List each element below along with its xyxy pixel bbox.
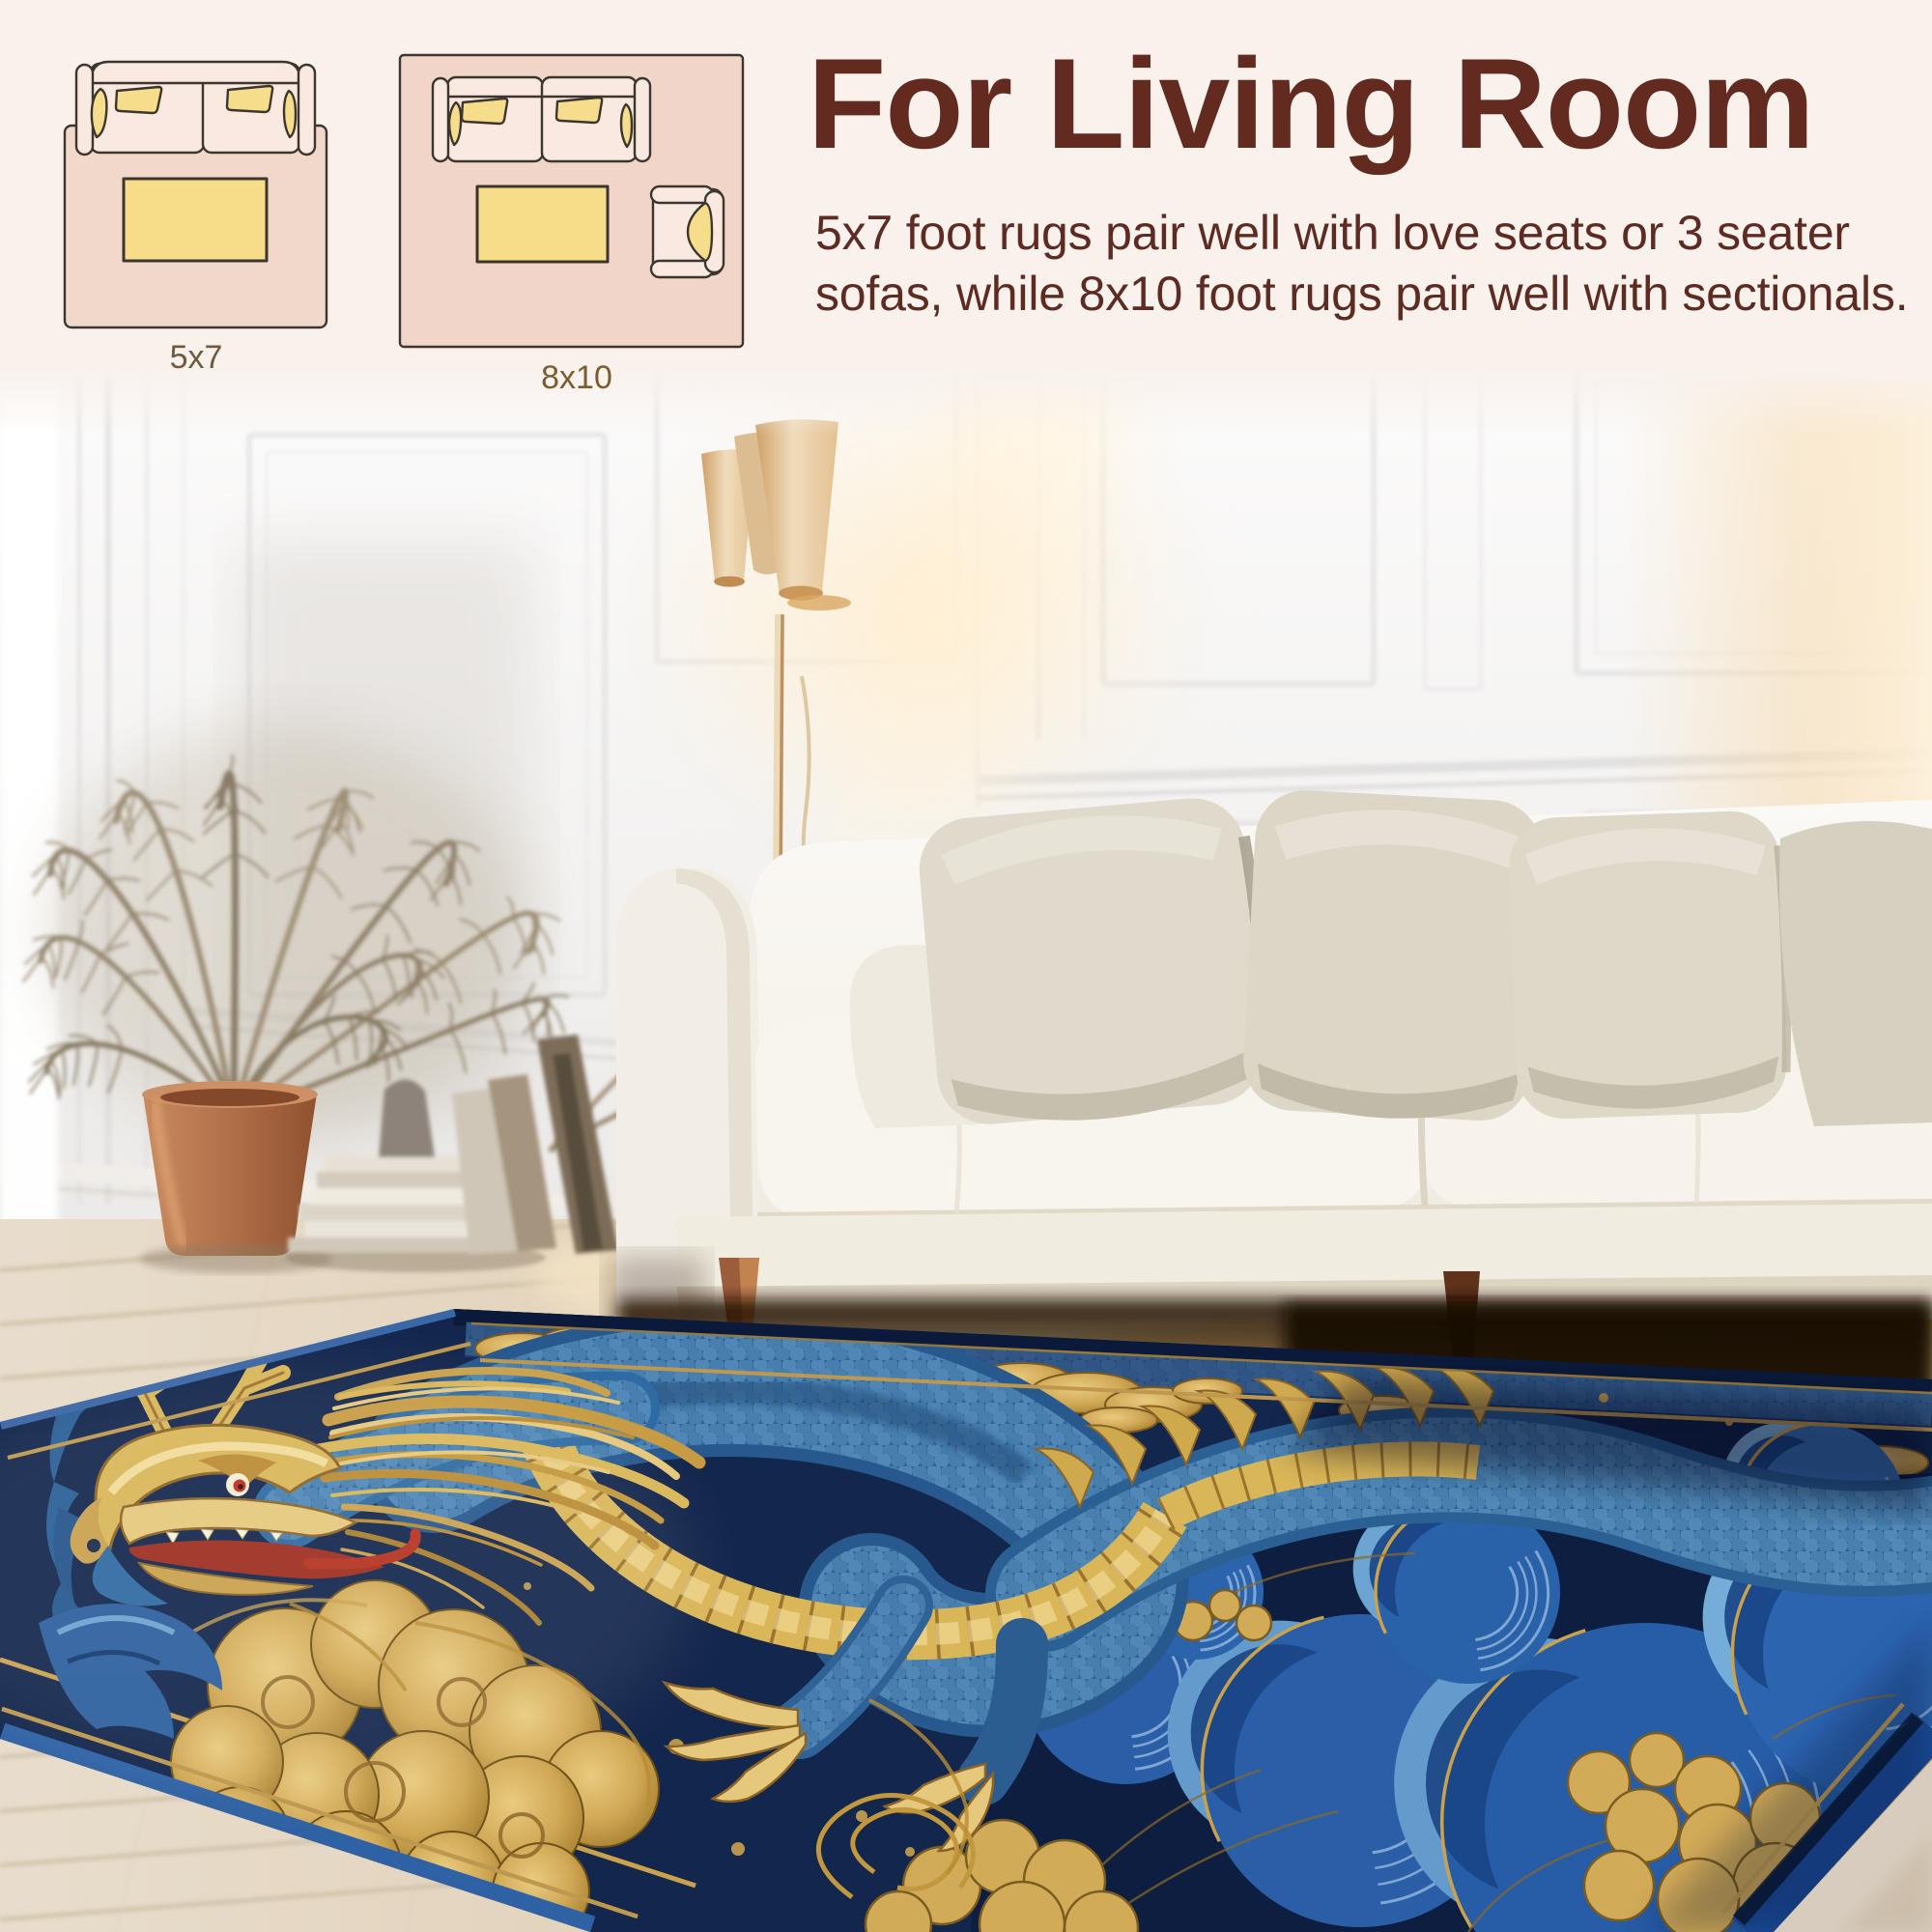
svg-text:5x7: 5x7 [170,339,223,376]
svg-text:8x10: 8x10 [541,359,612,396]
